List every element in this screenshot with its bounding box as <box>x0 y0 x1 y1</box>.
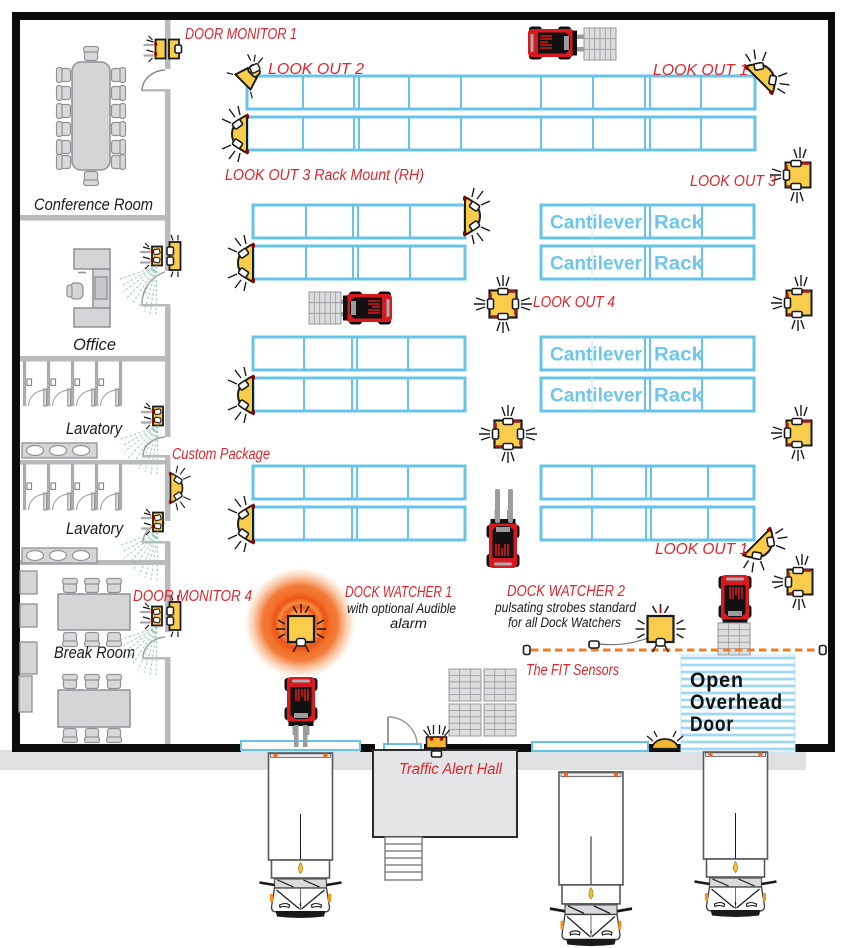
svg-text:LOOK OUT 3: LOOK OUT 3 <box>690 173 776 190</box>
svg-text:Traffic Alert Hall: Traffic Alert Hall <box>399 761 503 778</box>
svg-text:Cantilever: Cantilever <box>550 212 642 234</box>
svg-text:Cantilever: Cantilever <box>550 253 642 275</box>
svg-text:The FIT Sensors: The FIT Sensors <box>526 662 619 679</box>
svg-text:LOOK OUT 3 Rack Mount (RH): LOOK OUT 3 Rack Mount (RH) <box>225 167 424 184</box>
svg-text:DOCK WATCHER 2: DOCK WATCHER 2 <box>507 583 625 600</box>
svg-text:Door: Door <box>690 713 734 736</box>
svg-text:LOOK OUT 4: LOOK OUT 4 <box>533 294 615 311</box>
svg-text:Overhead: Overhead <box>690 691 783 714</box>
svg-text:Lavatory: Lavatory <box>66 419 123 438</box>
svg-text:Office: Office <box>73 335 116 354</box>
svg-text:Open: Open <box>690 669 744 692</box>
svg-text:DOCK WATCHER 1: DOCK WATCHER 1 <box>345 584 452 601</box>
svg-text:alarm: alarm <box>390 616 427 631</box>
svg-text:with optional Audible: with optional Audible <box>347 601 456 616</box>
svg-text:LOOK OUT 2: LOOK OUT 2 <box>268 61 364 78</box>
svg-text:LOOK OUT 1: LOOK OUT 1 <box>655 541 748 558</box>
svg-text:LOOK OUT 1: LOOK OUT 1 <box>653 62 748 79</box>
svg-text:for all Dock Watchers: for all Dock Watchers <box>508 615 621 630</box>
svg-text:Conference Room: Conference Room <box>34 195 153 214</box>
svg-text:Rack: Rack <box>654 385 703 407</box>
svg-text:Custom Package: Custom Package <box>172 446 270 463</box>
svg-text:pulsating strobes standard: pulsating strobes standard <box>494 600 636 615</box>
svg-text:Cantilever: Cantilever <box>550 344 642 366</box>
svg-text:DOOR MONITOR 4: DOOR MONITOR 4 <box>133 588 252 605</box>
svg-text:DOOR MONITOR 1: DOOR MONITOR 1 <box>185 26 297 43</box>
svg-text:Rack: Rack <box>654 212 703 234</box>
svg-text:Lavatory: Lavatory <box>66 519 124 538</box>
svg-text:Rack: Rack <box>654 253 703 275</box>
svg-text:Rack: Rack <box>654 344 703 366</box>
svg-text:Cantilever: Cantilever <box>550 385 642 407</box>
